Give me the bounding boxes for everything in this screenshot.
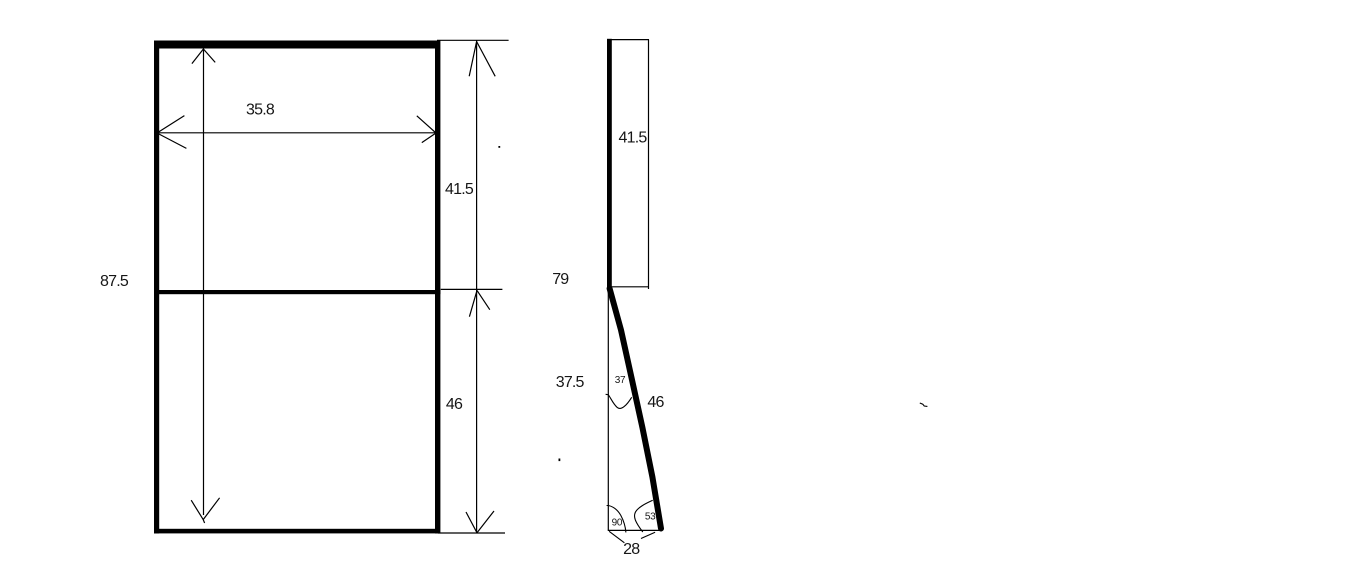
svg-text:28: 28 [623,541,640,558]
svg-text:79: 79 [552,271,569,288]
svg-text:37.5: 37.5 [556,374,585,391]
svg-text:46: 46 [647,394,664,411]
svg-text:46: 46 [446,396,463,413]
svg-text:41.5: 41.5 [445,181,474,198]
svg-text:53: 53 [645,511,656,522]
svg-text:87.5: 87.5 [100,273,129,290]
svg-text:41.5: 41.5 [619,129,648,146]
svg-text:90: 90 [612,517,623,528]
svg-text:37: 37 [615,375,626,386]
svg-text:35.8: 35.8 [246,101,275,118]
